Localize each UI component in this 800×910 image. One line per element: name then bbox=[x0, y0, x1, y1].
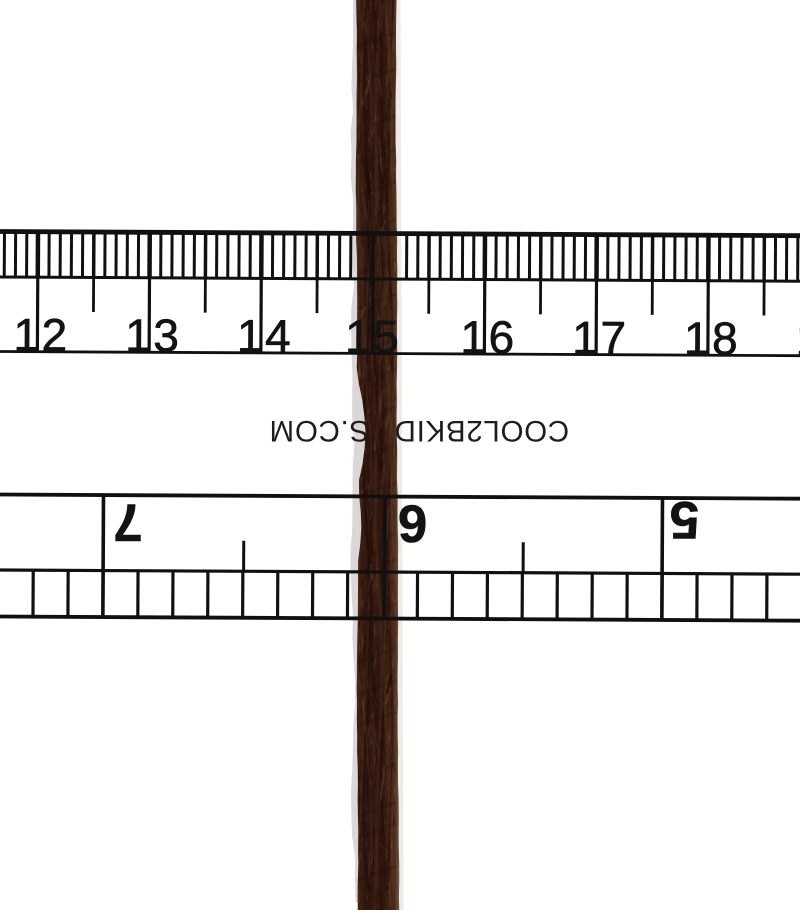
svg-text:19: 19 bbox=[796, 313, 800, 365]
svg-text:COOL2BKID: COOL2BKID bbox=[394, 414, 569, 447]
svg-text:5: 5 bbox=[670, 490, 699, 549]
svg-text:13: 13 bbox=[125, 309, 182, 361]
svg-text:17: 17 bbox=[572, 311, 629, 363]
svg-text:S.COM: S.COM bbox=[269, 414, 369, 447]
svg-text:6: 6 bbox=[398, 494, 427, 553]
svg-text:12: 12 bbox=[13, 309, 70, 361]
svg-text:18: 18 bbox=[684, 312, 741, 364]
svg-text:16: 16 bbox=[460, 311, 517, 363]
svg-text:7: 7 bbox=[113, 493, 142, 552]
svg-text:14: 14 bbox=[237, 310, 294, 362]
svg-text:15: 15 bbox=[345, 310, 402, 362]
